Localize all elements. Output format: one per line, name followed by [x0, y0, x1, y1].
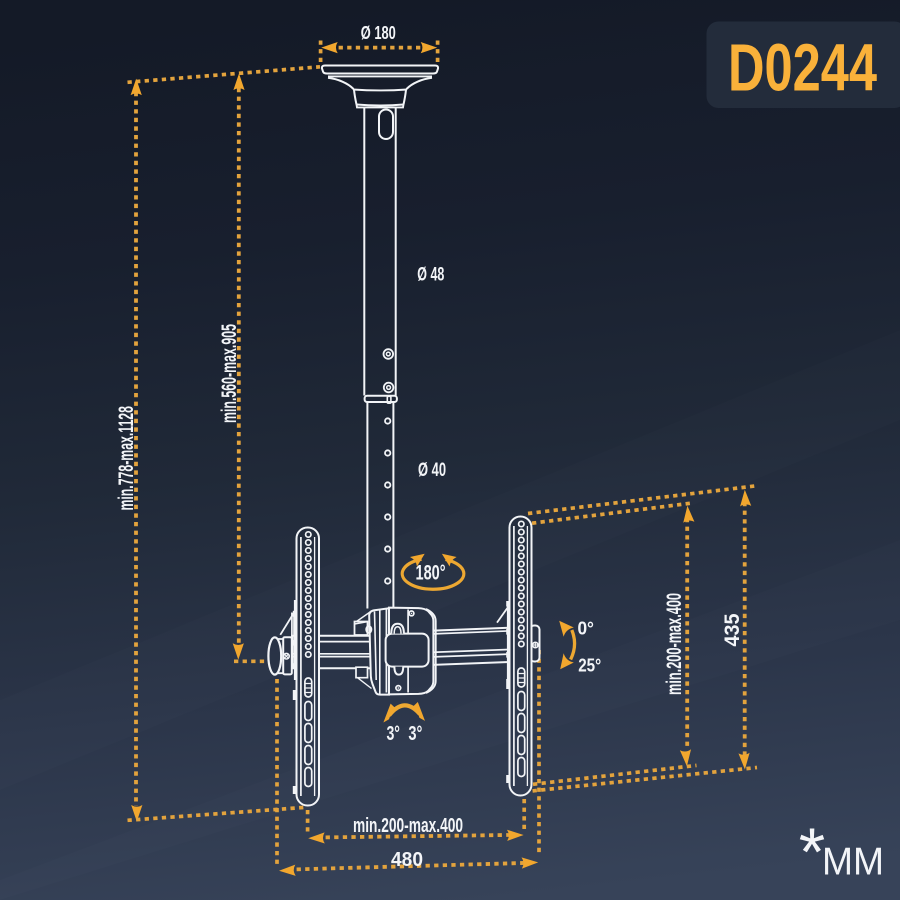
svg-text:min.560-max.905: min.560-max.905	[218, 324, 241, 423]
svg-text:min.200-max.400: min.200-max.400	[353, 815, 463, 837]
svg-text:D0244: D0244	[728, 31, 877, 106]
svg-text:MM: MM	[822, 841, 884, 884]
svg-text:480: 480	[391, 848, 423, 871]
svg-text:25°: 25°	[578, 655, 601, 676]
svg-text:Ø 40: Ø 40	[418, 459, 446, 481]
svg-text:435: 435	[721, 613, 744, 646]
svg-text:Ø 48: Ø 48	[417, 263, 444, 285]
svg-text:min.778-max.1128: min.778-max.1128	[115, 406, 138, 511]
svg-text:0°: 0°	[577, 618, 594, 639]
svg-text:min.200-max.400: min.200-max.400	[663, 593, 686, 695]
svg-text:3°: 3°	[386, 722, 400, 745]
svg-text:Ø 180: Ø 180	[361, 23, 396, 43]
svg-text:180°: 180°	[416, 562, 446, 585]
svg-text:3°: 3°	[408, 722, 422, 745]
